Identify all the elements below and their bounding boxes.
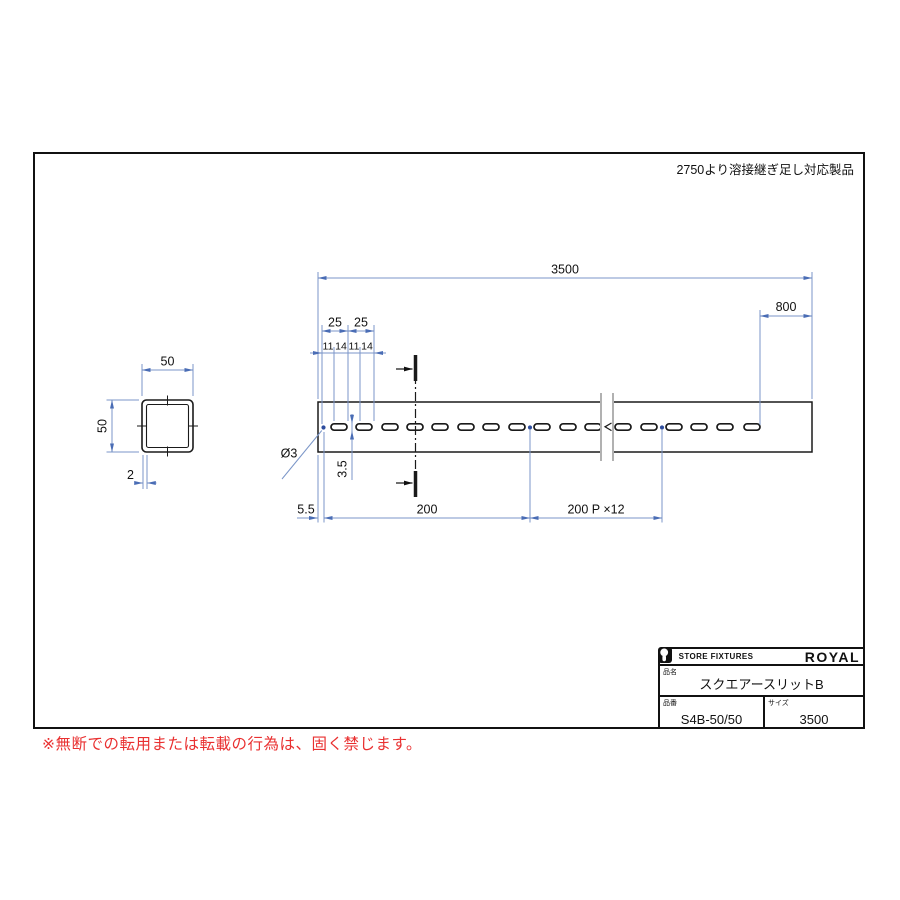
dim-slot-height: 3.5 [336,460,350,477]
break-gap [600,394,614,460]
product-name-value: スクエアースリットB [660,674,863,693]
dim-right-end: 800 [776,300,797,314]
dim-section-width: 50 [161,355,175,369]
dim-seg-11b: 11 [349,341,360,353]
drawing-sheet: 2750より溶接継ぎ足し対応製品 [0,0,900,900]
dim-pitch-25a: 25 [328,316,342,330]
royal-logo-icon [658,647,672,663]
dim-overall-length: 3500 [551,263,579,277]
dim-hole-diameter: Ø3 [281,447,298,461]
dim-pitch-run: 200 P ×12 [567,503,624,517]
size-cell: サイズ 3500 [765,697,863,729]
dim-seg-14a: 14 [335,341,347,353]
copyright-warning: ※無断での転用または転載の行為は、固く禁じます。 [42,732,422,754]
part-no-label: 品番 [663,698,677,708]
brand-name: ROYAL [805,650,860,664]
weld-mark-top [396,355,416,381]
title-block-body: 品名 スクエアースリットB 品番 S4B-50/50 サイズ 3500 [658,666,865,729]
dim-seg-14b: 14 [361,341,373,353]
title-block: STORE FIXTURES ROYAL 品名 スクエアースリットB 品番 S4… [658,647,865,729]
plan-view: 3500 800 25 25 11 14 11 14 [281,263,812,523]
dim-first-pitch: 200 [417,503,438,517]
store-fixtures-label: STORE FIXTURES [660,652,772,661]
dim-node-dot-2 [660,425,664,429]
end-hole [321,425,325,429]
size-label: サイズ [768,698,789,708]
dim-seg-11a: 11 [323,341,334,353]
technical-drawing: 50 50 2 [0,0,900,900]
dim-edge-offset: 5.5 [297,503,314,517]
part-no-value: S4B-50/50 [660,712,763,727]
section-center-ticks [137,396,198,457]
weld-mark-bottom [396,471,416,497]
section-outer-square [142,400,193,452]
product-name-row: 品名 スクエアースリットB [660,666,863,697]
size-value: 3500 [765,712,863,727]
section-inner-square [147,405,189,448]
section-view: 50 50 2 [96,355,199,490]
dim-wall-thickness: 2 [127,468,134,482]
dim-node-dot-1 [528,425,532,429]
slot-row [331,424,760,430]
title-block-header: STORE FIXTURES ROYAL [658,647,865,666]
bar-outline [318,402,812,452]
dim-pitch-25b: 25 [354,316,368,330]
dim-section-height: 50 [96,419,110,433]
part-no-cell: 品番 S4B-50/50 [660,697,765,729]
